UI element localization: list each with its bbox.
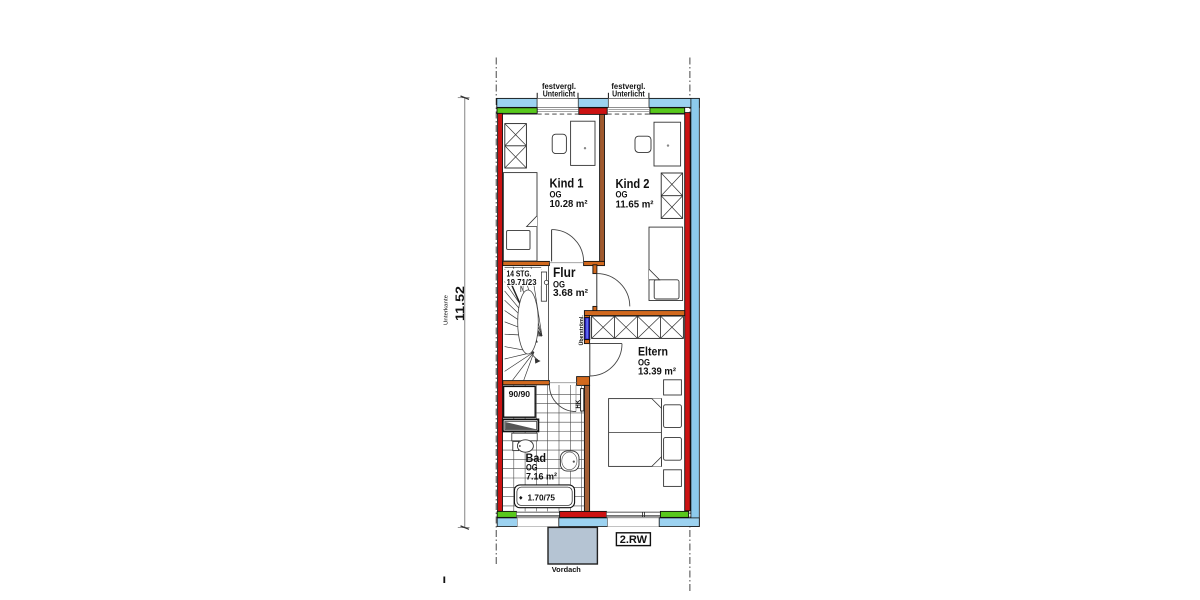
svg-text:Unterlicht: Unterlicht: [543, 90, 576, 99]
svg-text:Kind 1: Kind 1: [550, 176, 584, 191]
svg-text:3.68 m²: 3.68 m²: [553, 287, 588, 299]
svg-text:90/90: 90/90: [509, 390, 531, 399]
svg-text:Unterkante: Unterkante: [444, 295, 450, 325]
svg-text:7.16 m²: 7.16 m²: [526, 472, 557, 483]
svg-text:11.52: 11.52: [455, 286, 467, 321]
svg-text:Vordach: Vordach: [552, 565, 582, 574]
svg-text:1.70/75: 1.70/75: [528, 493, 556, 503]
svg-text:13.39 m²: 13.39 m²: [638, 366, 676, 378]
svg-text:HK: HK: [576, 399, 582, 408]
svg-text:10.28 m²: 10.28 m²: [550, 198, 588, 210]
svg-text:Flur: Flur: [553, 265, 576, 280]
svg-text:19.71/23: 19.71/23: [507, 278, 538, 287]
svg-text:11.65 m²: 11.65 m²: [616, 198, 654, 210]
svg-text:Unterlicht: Unterlicht: [612, 90, 645, 99]
svg-text:2.RW: 2.RW: [620, 534, 648, 546]
